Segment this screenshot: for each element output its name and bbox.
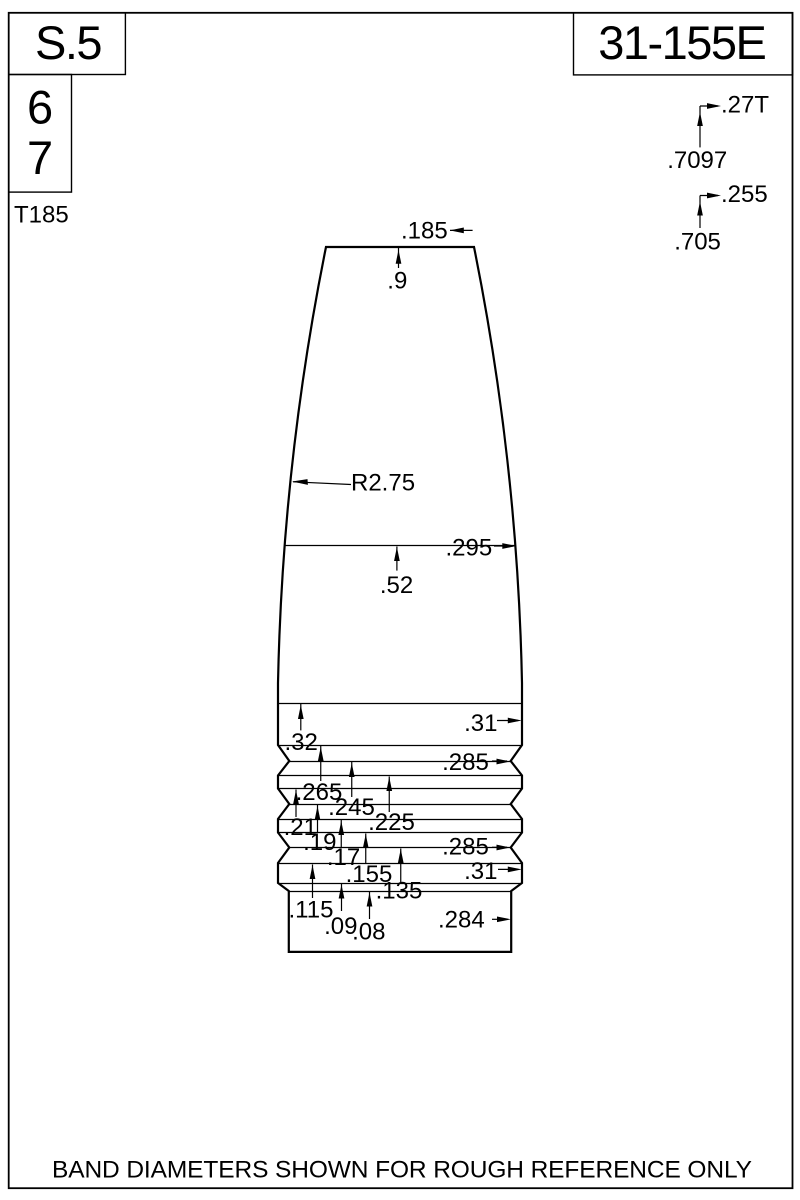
svg-text:.705: .705	[674, 229, 721, 256]
svg-text:.31: .31	[464, 710, 497, 737]
svg-text:.32: .32	[285, 729, 318, 756]
svg-text:.284: .284	[438, 907, 485, 934]
svg-text:.285: .285	[442, 749, 489, 776]
svg-text:.285: .285	[442, 834, 489, 861]
svg-text:7: 7	[27, 131, 52, 184]
svg-text:R2.75: R2.75	[351, 470, 415, 497]
svg-text:.27T: .27T	[721, 92, 769, 119]
svg-text:.08: .08	[352, 919, 385, 946]
svg-text:.135: .135	[376, 878, 423, 905]
svg-text:.31: .31	[464, 858, 497, 885]
svg-text:.295: .295	[446, 535, 493, 562]
svg-text:.185: .185	[401, 218, 448, 245]
svg-text:S.5: S.5	[35, 16, 101, 69]
svg-text:6: 6	[27, 80, 52, 133]
svg-text:.9: .9	[387, 268, 407, 295]
svg-text:.52: .52	[380, 572, 413, 599]
svg-text:.225: .225	[368, 809, 415, 836]
svg-text:31-155E: 31-155E	[598, 16, 765, 69]
svg-text:BAND DIAMETERS SHOWN FOR ROUGH: BAND DIAMETERS SHOWN FOR ROUGH REFERENCE…	[52, 1157, 752, 1184]
svg-text:.255: .255	[721, 181, 768, 208]
svg-text:.7097: .7097	[667, 147, 727, 174]
svg-text:T185: T185	[14, 202, 69, 229]
